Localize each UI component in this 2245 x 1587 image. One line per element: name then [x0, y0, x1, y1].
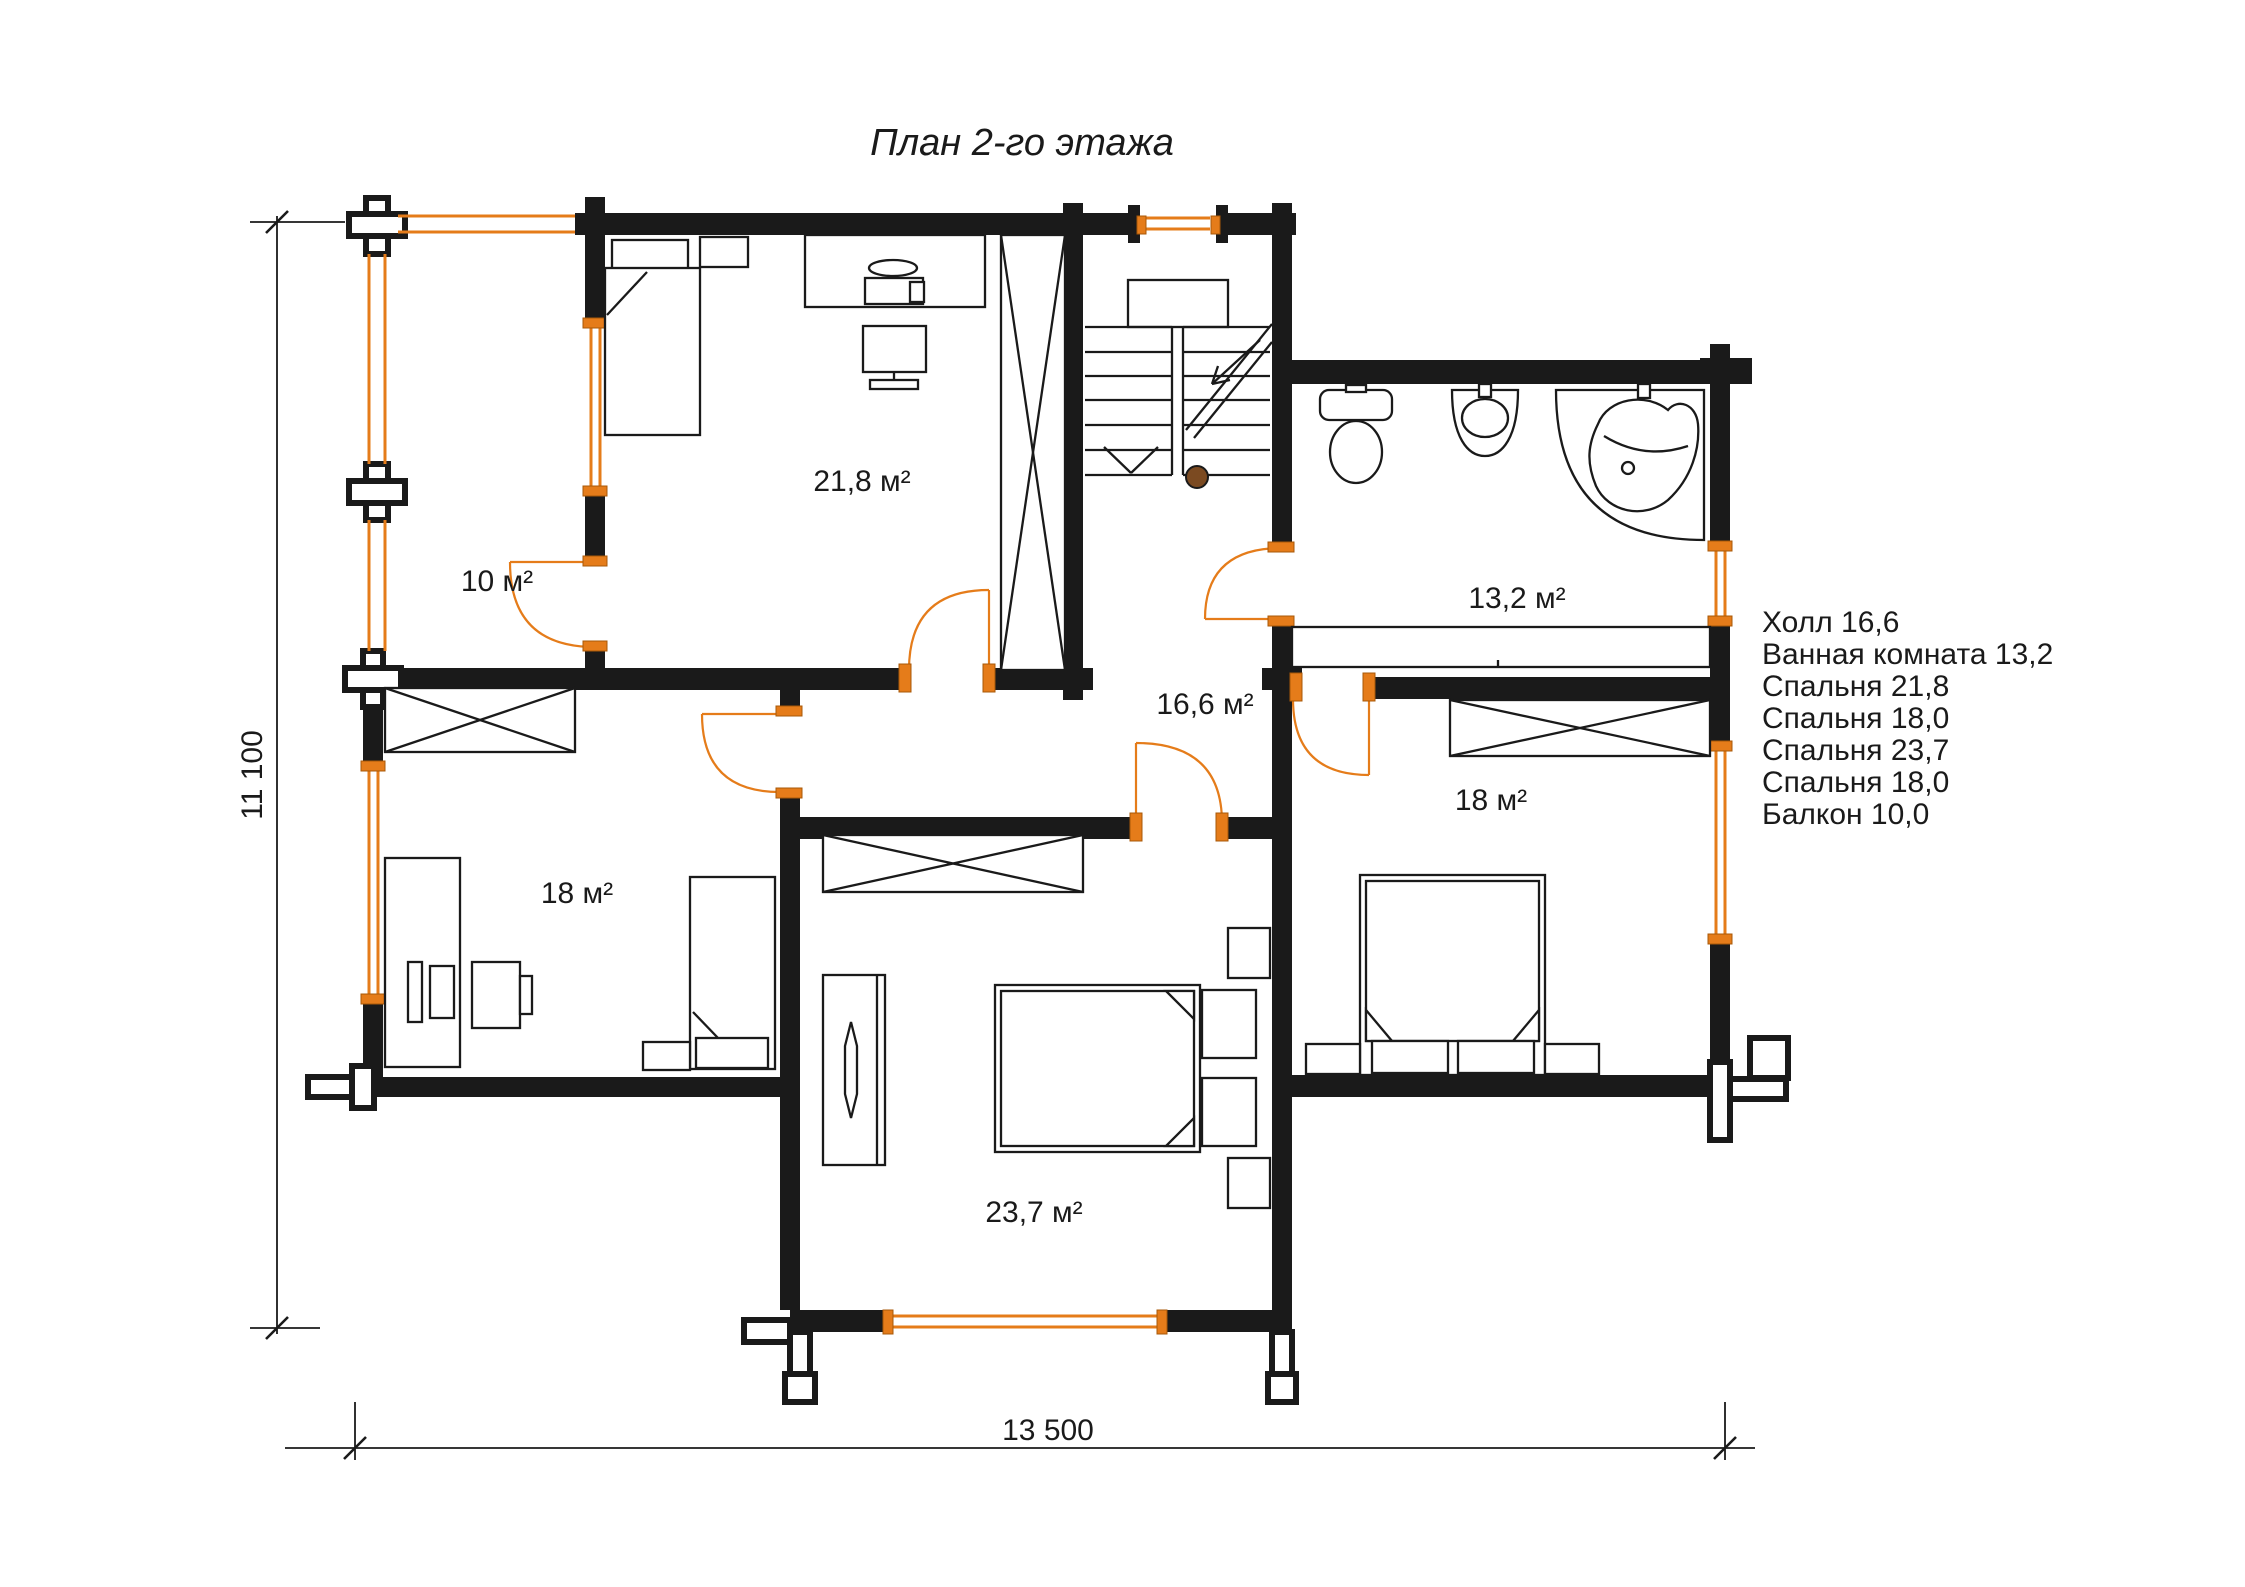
tv: [845, 1022, 857, 1118]
room-label-bedroom-top-left: 21,8 м²: [813, 465, 910, 498]
legend-item-bedroom-4: Спальня 18,0: [1762, 766, 1949, 799]
nightstand: [1228, 1158, 1270, 1208]
legend-item-bedroom-3: Спальня 23,7: [1762, 734, 1949, 767]
chair: [472, 962, 520, 1028]
newel-post: [1186, 466, 1208, 488]
corner-bathtub: [1556, 384, 1704, 540]
plan-title: План 2-го этажа: [870, 122, 1174, 164]
nightstand: [1228, 928, 1270, 978]
dimension-width: 13 500: [1002, 1414, 1094, 1447]
room-label-hall: 16,6 м²: [1156, 688, 1253, 721]
monitor: [863, 326, 926, 372]
legend-item-balcony: Балкон 10,0: [1762, 798, 1929, 831]
room-legend: Холл 16,6 Ванная комната 13,2 Спальня 21…: [1762, 606, 2053, 831]
nightstand: [643, 1042, 690, 1070]
nightstand: [1545, 1044, 1599, 1074]
room-label-bedroom-bottom: 23,7 м²: [985, 1196, 1082, 1229]
room-label-bedroom-left: 18 м²: [541, 877, 613, 910]
bed: [605, 268, 700, 435]
nightstand: [700, 237, 748, 267]
floor-plan-canvas: 11 100 13 500 21,8 м² 10 м² 13,2 м² 16,6…: [0, 0, 2245, 1587]
legend-item-bathroom: Ванная комната 13,2: [1762, 638, 2053, 671]
room-label-bathroom: 13,2 м²: [1468, 582, 1565, 615]
double-bed: [995, 985, 1200, 1152]
room-label-bedroom-right: 18 м²: [1455, 784, 1527, 817]
furniture-bedroom-top-left: [605, 235, 985, 435]
floor-plan-drawing: 11 100 13 500 21,8 м² 10 м² 13,2 м² 16,6…: [0, 0, 2245, 1587]
legend-item-bedroom-2: Спальня 18,0: [1762, 702, 1949, 735]
furniture-bedroom-right: [1306, 700, 1710, 1075]
dimension-height: 11 100: [236, 730, 269, 820]
sink: [1452, 384, 1518, 456]
computer: [408, 962, 422, 1022]
nightstand: [1306, 1044, 1360, 1074]
room-label-balcony: 10 м²: [461, 565, 533, 598]
legend-item-hall: Холл 16,6: [1762, 606, 1899, 639]
bed-cushion: [1202, 990, 1256, 1058]
furniture-bedroom-bottom: [823, 835, 1270, 1208]
staircase: [1085, 280, 1272, 488]
bed-cushion: [1202, 1078, 1256, 1146]
toilet: [1320, 385, 1392, 483]
legend-item-bedroom-1: Спальня 21,8: [1762, 670, 1949, 703]
chimney-shaft: [1001, 235, 1065, 670]
bathroom-fixtures: [1292, 384, 1710, 667]
bathroom-shelf-band: [1292, 627, 1710, 667]
